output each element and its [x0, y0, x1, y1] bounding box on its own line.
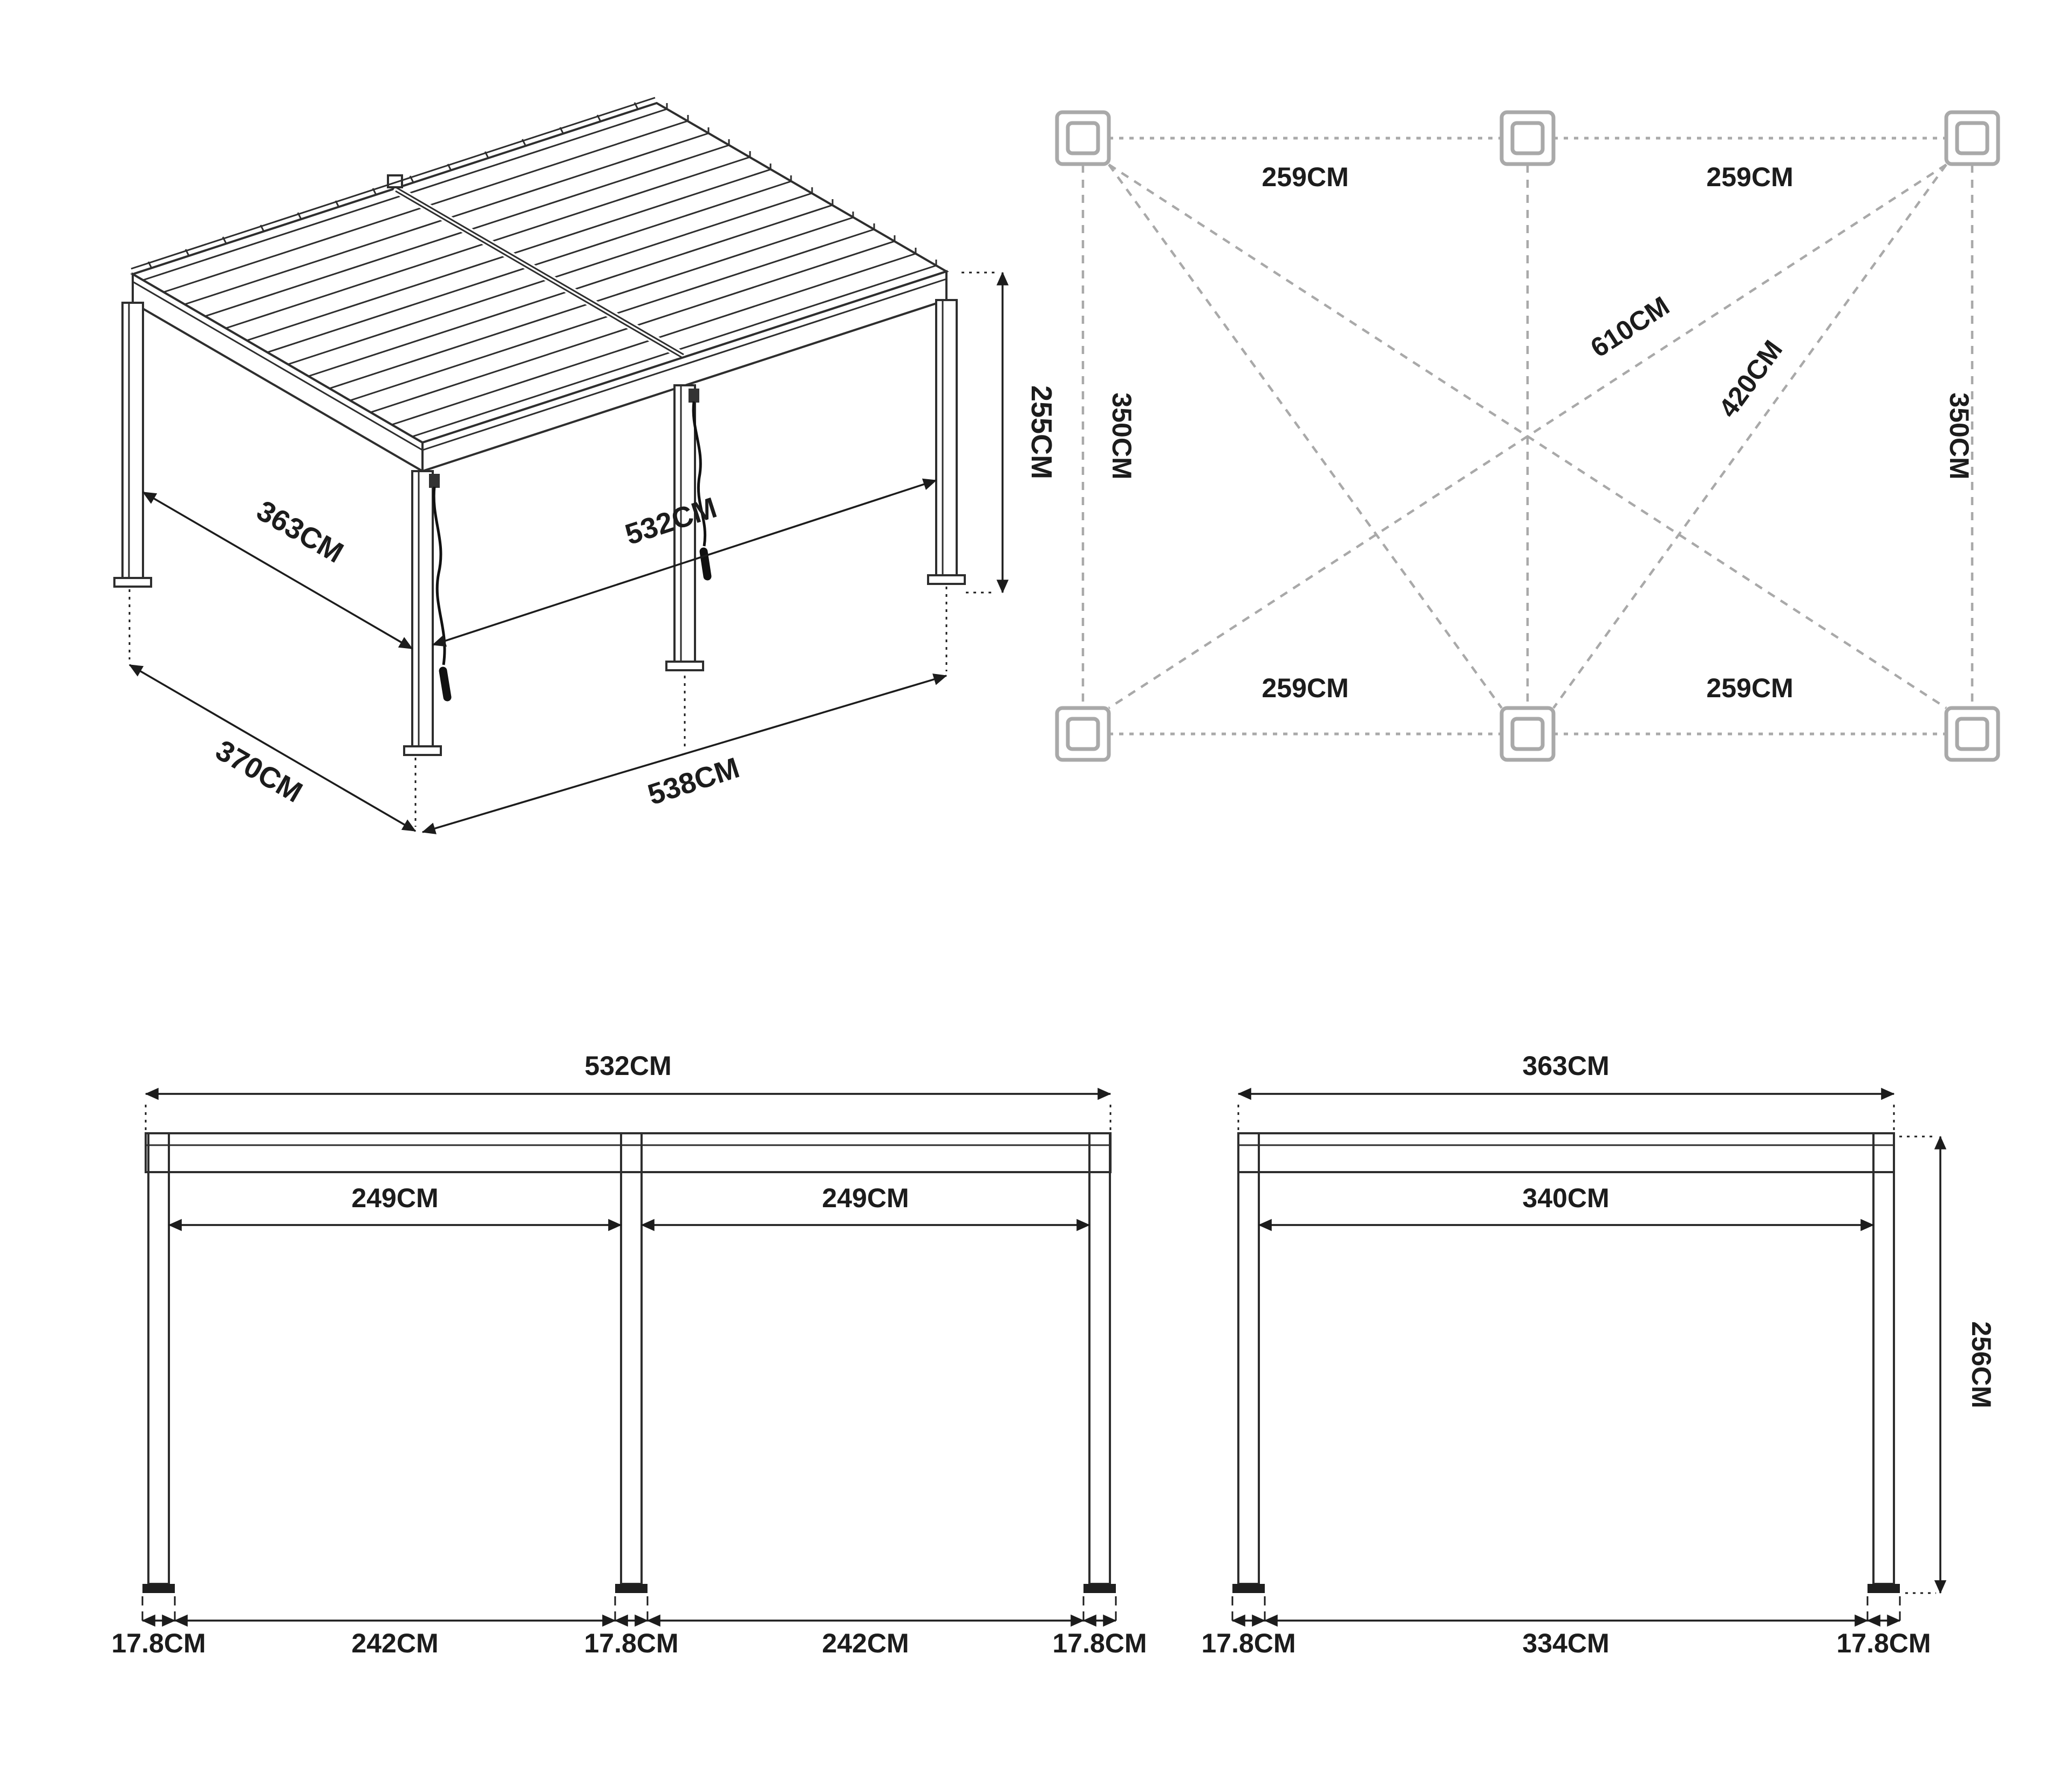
front-foot-right — [1083, 1584, 1116, 1593]
side-dim-ext-height — [1899, 1137, 1936, 1593]
plan-label-span-bottom-right: 259CM — [1706, 673, 1793, 703]
front-label-foot-b: 17.8CM — [584, 1628, 678, 1658]
front-post-right — [1089, 1133, 1110, 1584]
crank-bracket-front — [429, 474, 440, 488]
front-foot-middle — [615, 1584, 647, 1593]
front-dim-ext-overall — [146, 1100, 1110, 1130]
post-marker-bottom-left-inner — [1068, 719, 1098, 749]
plan-label-span-bottom-left: 259CM — [1262, 673, 1348, 703]
side-beam — [1238, 1133, 1894, 1172]
side-dim-ext-bottom — [1232, 1596, 1900, 1623]
side-label-overall: 363CM — [1522, 1051, 1609, 1081]
front-dim-ext-bottom — [142, 1596, 1116, 1623]
dim-label-538: 538CM — [644, 751, 743, 811]
front-label-foot-c: 17.8CM — [1052, 1628, 1147, 1658]
post-front-foot — [404, 746, 441, 755]
front-beam — [146, 1133, 1110, 1172]
front-post-left — [148, 1133, 169, 1584]
post-marker-top-right-inner — [1957, 123, 1987, 153]
front-label-span-b: 242CM — [822, 1628, 909, 1658]
plan-view: 259CM 259CM 259CM 259CM 350CM 350CM 610C… — [1057, 112, 1998, 760]
dim-ext-255 — [962, 273, 996, 593]
dim-line-370 — [129, 665, 415, 831]
crank-handle-front — [443, 671, 447, 697]
dim-label-255: 255CM — [1025, 385, 1058, 479]
plan-label-diagonal-610: 610CM — [1585, 290, 1675, 363]
side-dim-ext-overall — [1238, 1100, 1894, 1130]
side-label-span: 334CM — [1522, 1628, 1609, 1658]
post-marker-bottom-right-inner — [1957, 719, 1987, 749]
front-label-foot-a: 17.8CM — [111, 1628, 206, 1658]
front-post-middle — [621, 1133, 642, 1584]
crank-bracket-middle — [689, 389, 699, 403]
side-label-foot-b: 17.8CM — [1836, 1628, 1931, 1658]
post-marker-top-middle-inner — [1512, 123, 1543, 153]
post-middle-foot — [666, 662, 703, 670]
post-right-foot — [928, 575, 965, 584]
post-marker-bottom-middle-inner — [1512, 719, 1543, 749]
front-label-overall: 532CM — [584, 1051, 671, 1081]
crank-cord-front — [434, 487, 445, 665]
plan-label-span-top-left: 259CM — [1262, 162, 1348, 192]
side-foot-left — [1232, 1584, 1265, 1593]
post-front — [412, 471, 433, 746]
technical-drawing-sheet: 363CM 532CM 255CM 370CM 538CM — [0, 0, 2072, 1776]
pergola-dimension-diagram: 363CM 532CM 255CM 370CM 538CM — [0, 0, 2072, 1776]
iso-view: 363CM 532CM 255CM 370CM 538CM — [114, 98, 1058, 832]
side-label-inner: 340CM — [1522, 1183, 1609, 1213]
front-elevation: 532CM 249CM 249CM 17.8CM 242CM 17.8CM 24… — [111, 1051, 1147, 1658]
plan-label-side-right: 350CM — [1944, 392, 1974, 479]
side-label-height: 256CM — [1966, 1321, 1996, 1408]
dim-label-363: 363CM — [251, 494, 349, 569]
post-left — [122, 303, 143, 578]
dim-ext-538 — [685, 587, 946, 749]
post-right — [936, 300, 957, 575]
side-post-left — [1238, 1133, 1259, 1584]
plan-label-side-left: 350CM — [1107, 392, 1137, 479]
front-label-bay-right: 249CM — [822, 1183, 909, 1213]
plan-label-diagonal-420: 420CM — [1713, 335, 1788, 423]
front-label-bay-left: 249CM — [351, 1183, 438, 1213]
side-label-foot-a: 17.8CM — [1201, 1628, 1296, 1658]
front-label-span-a: 242CM — [351, 1628, 438, 1658]
dim-label-370: 370CM — [210, 734, 308, 809]
plan-label-span-top-right: 259CM — [1706, 162, 1793, 192]
post-left-foot — [114, 578, 151, 587]
side-post-right — [1873, 1133, 1894, 1584]
post-marker-top-left-inner — [1068, 123, 1098, 153]
front-foot-left — [142, 1584, 175, 1593]
side-elevation: 363CM 340CM 256CM 17.8CM 334CM 17.8CM — [1201, 1051, 1996, 1658]
side-foot-right — [1867, 1584, 1900, 1593]
